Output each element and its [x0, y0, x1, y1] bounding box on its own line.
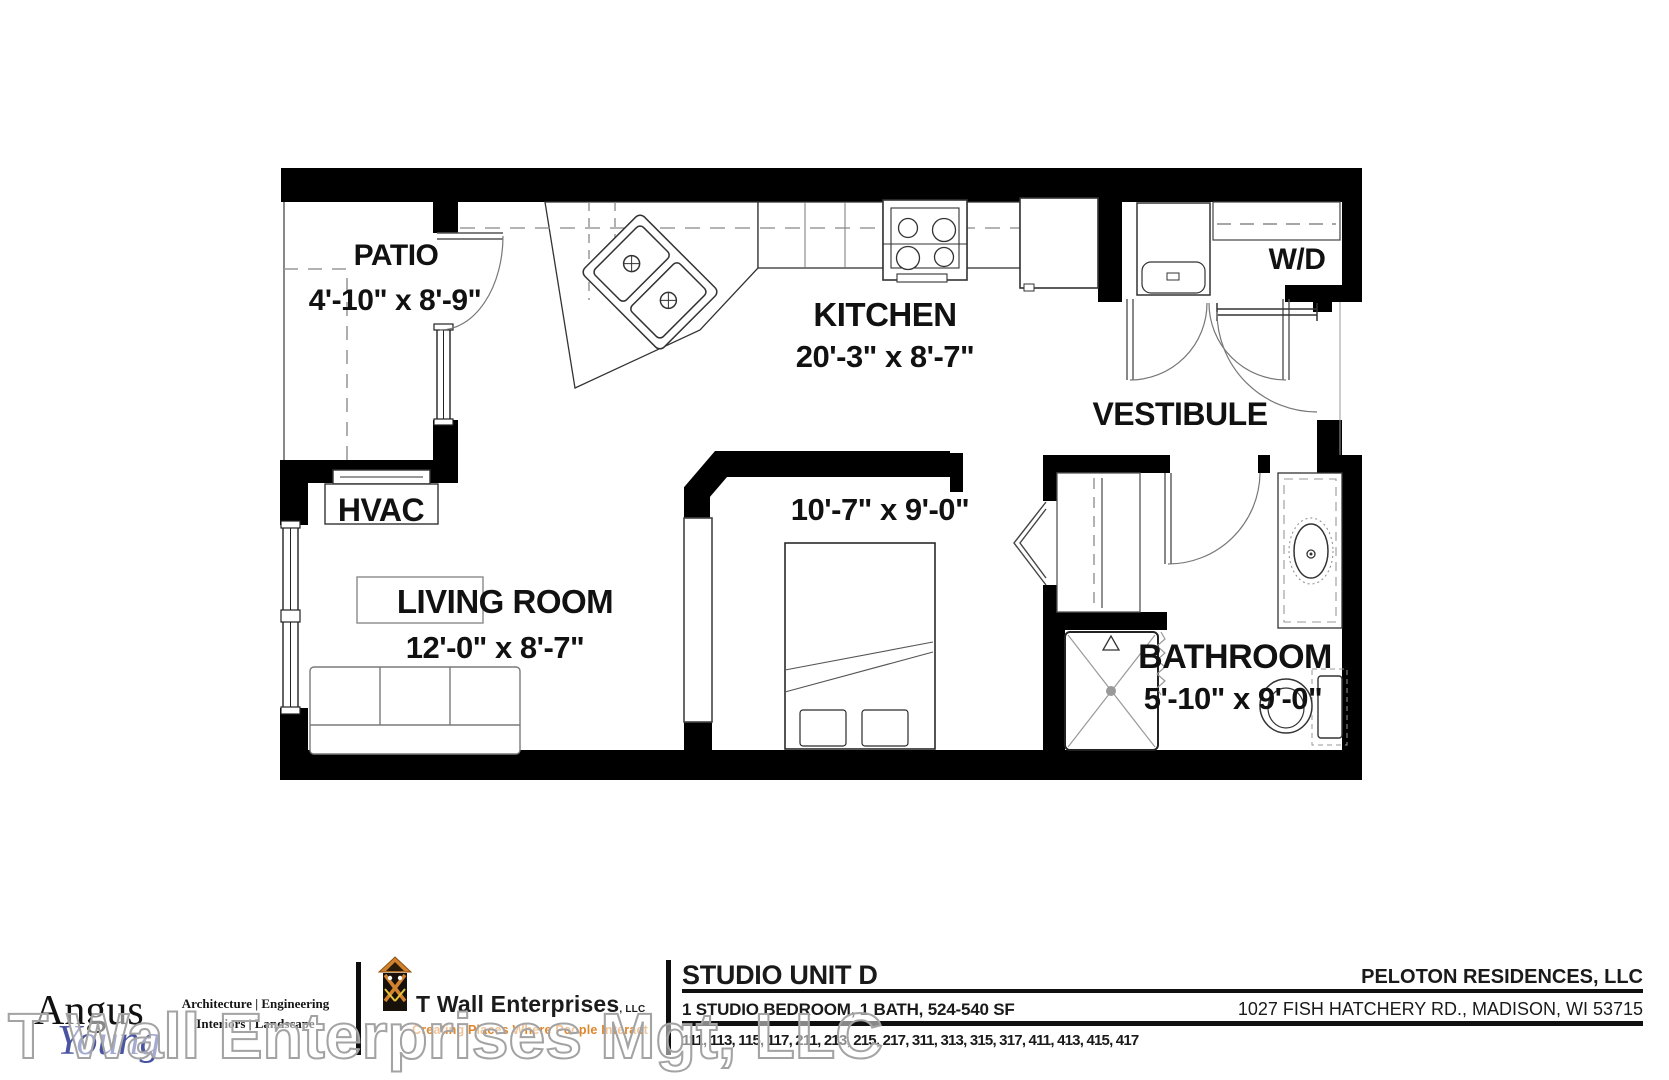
developer-tagline: Creating Places Where People Interact: [412, 1023, 648, 1037]
room-dims-kitchen: 20'-3" x 8'-7": [796, 339, 974, 374]
room-dims-bathroom: 5'-10" x 9'-0": [1144, 681, 1322, 716]
footer-rule-1: [682, 989, 1643, 993]
bifold-door: [1014, 502, 1046, 585]
vestibule-doors: [1127, 299, 1289, 380]
developer-name-text: T Wall Enterprises: [416, 991, 619, 1017]
architect-services-line1: Architecture | Engineering: [182, 996, 330, 1011]
refrigerator: [1020, 198, 1098, 288]
washer-dryer: [1137, 203, 1210, 295]
floor-plan-drawing: PATIO 4'-10" x 8'-9" KITCHEN 20'-3" x 8'…: [0, 0, 1669, 1080]
room-label-bathroom: BATHROOM: [1138, 638, 1332, 676]
room-label-patio: PATIO: [354, 239, 439, 272]
closet: [1014, 473, 1140, 612]
developer-logo-name: T Wall Enterprises, LLC: [416, 991, 645, 1018]
developer-name-suffix: , LLC: [619, 1004, 645, 1015]
architect-services: Architecture | Engineering Interiors | L…: [168, 994, 343, 1034]
bed: [785, 543, 935, 749]
room-label-hvac: HVAC: [338, 492, 425, 528]
architect-services-line2: Interiors | Landscape: [196, 1016, 314, 1031]
living-room-window: [281, 521, 300, 714]
vanity-sink: [1278, 473, 1342, 628]
room-label-kitchen: KITCHEN: [813, 296, 956, 333]
sliding-panel: [684, 518, 712, 722]
owner-name: PELOTON RESIDENCES, LLC: [1100, 966, 1643, 989]
sofa: [310, 667, 520, 754]
patio-window: [434, 324, 453, 425]
refrigerator-handle: [1024, 284, 1034, 291]
bathroom-door: [1165, 473, 1260, 564]
architect-logo-young: Young: [57, 1020, 161, 1062]
footer-divider-2: [666, 960, 671, 1055]
footer-rule-2: [682, 1021, 1643, 1026]
wd-shelf: [1213, 202, 1340, 240]
room-label-vestibule: VESTIBULE: [1092, 396, 1267, 432]
unit-summary: 1 STUDIO BEDROOM, 1 BATH, 524-540 SF: [682, 1000, 1015, 1020]
floor-plan-sheet: PATIO 4'-10" x 8'-9" KITCHEN 20'-3" x 8'…: [0, 0, 1669, 1080]
room-dims-sleeping: 10'-7" x 9'-0": [791, 492, 969, 527]
room-dims-living: 12'-0" x 8'-7": [406, 630, 584, 665]
room-dims-patio: 4'-10" x 8'-9": [309, 284, 481, 317]
footer-divider-1: [356, 962, 361, 1055]
twall-tower-icon: [378, 956, 412, 1014]
room-label-laundry: W/D: [1269, 243, 1326, 276]
room-label-living: LIVING ROOM: [397, 583, 613, 620]
stove: [883, 200, 967, 282]
unit-numbers: 111, 113, 115, 117, 211, 213, 215, 217, …: [682, 1032, 1138, 1049]
unit-title: STUDIO UNIT D: [682, 960, 878, 991]
owner-address: 1027 FISH HATCHERY RD., MADISON, WI 5371…: [1100, 999, 1643, 1020]
